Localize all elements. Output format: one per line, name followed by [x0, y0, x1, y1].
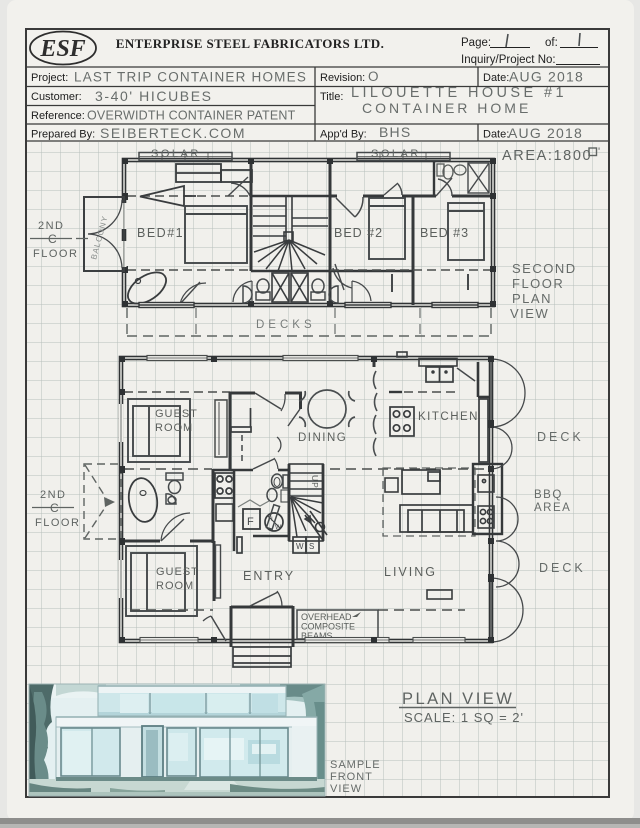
svg-text:3-40' HICUBES: 3-40' HICUBES: [95, 88, 213, 104]
svg-text:DECKS: DECKS: [256, 319, 316, 331]
svg-text:DINING: DINING: [298, 432, 347, 444]
svg-text:OVERWIDTH CONTAINER PATENT: OVERWIDTH CONTAINER PATENT: [87, 109, 296, 123]
svg-text:GUEST: GUEST: [155, 408, 198, 420]
svg-text:CONTAINER HOME: CONTAINER HOME: [362, 100, 531, 116]
svg-text:PLAN VIEW: PLAN VIEW: [402, 690, 514, 708]
svg-text:Inquiry/Project No:: Inquiry/Project No:: [461, 54, 556, 66]
svg-text:FLOOR: FLOOR: [33, 248, 78, 260]
svg-text:BED #3: BED #3: [420, 226, 469, 240]
svg-text:App'd By:: App'd By:: [320, 129, 367, 141]
svg-text:LAST TRIP CONTAINER HOMES: LAST TRIP CONTAINER HOMES: [74, 70, 307, 85]
svg-text:ENTRY: ENTRY: [243, 569, 295, 583]
svg-text:LIVING: LIVING: [384, 565, 437, 579]
svg-text:2ND: 2ND: [40, 489, 67, 501]
svg-text:Customer:: Customer:: [31, 91, 82, 103]
svg-text:of:: of:: [545, 37, 558, 49]
svg-text:Project:: Project:: [31, 72, 68, 84]
svg-text:ENTERPRISE STEEL FABRICATORS L: ENTERPRISE STEEL FABRICATORS LTD.: [116, 36, 384, 51]
svg-text:Reference:: Reference:: [31, 110, 85, 122]
svg-text:': ': [598, 146, 600, 158]
svg-text:UP: UP: [310, 475, 320, 489]
svg-text:LILOUETTE HOUSE #1: LILOUETTE HOUSE #1: [351, 85, 567, 101]
svg-text:2ND: 2ND: [38, 220, 65, 232]
svg-text:S: S: [309, 542, 314, 551]
svg-text:GUEST: GUEST: [156, 566, 199, 578]
svg-text:COMPOSITE: COMPOSITE: [301, 622, 355, 632]
svg-text:KITCHEN: KITCHEN: [418, 411, 479, 423]
svg-text:ESF: ESF: [39, 36, 85, 62]
svg-text:SAMPLE: SAMPLE: [330, 759, 381, 771]
svg-text:AUG 2018: AUG 2018: [508, 125, 583, 141]
svg-text:VIEW: VIEW: [330, 783, 362, 795]
svg-text:BED#1: BED#1: [137, 226, 184, 240]
svg-text:SOLAR: SOLAR: [151, 148, 201, 160]
svg-text:Page:: Page:: [461, 37, 491, 49]
svg-text:AUG 2018: AUG 2018: [509, 69, 584, 85]
svg-text:BED #2: BED #2: [334, 226, 383, 240]
svg-text:FLOOR: FLOOR: [512, 276, 564, 291]
svg-text:OVERHEAD: OVERHEAD: [301, 612, 352, 622]
svg-text:DECK: DECK: [537, 430, 584, 444]
svg-text:Prepared By:: Prepared By:: [31, 129, 95, 141]
svg-text:VIEW: VIEW: [510, 306, 549, 321]
svg-text:SECOND: SECOND: [512, 261, 577, 276]
svg-text:SEIBERTECK.COM: SEIBERTECK.COM: [100, 125, 246, 141]
svg-text:FRONT: FRONT: [330, 771, 373, 783]
svg-text:Date:: Date:: [483, 72, 509, 84]
svg-text:W: W: [275, 524, 282, 531]
svg-text:AREA:1800: AREA:1800: [502, 148, 592, 164]
svg-text:FLOOR: FLOOR: [35, 517, 80, 529]
svg-text:BBQ: BBQ: [534, 489, 563, 501]
svg-text:DECK: DECK: [539, 561, 586, 575]
svg-text:Title:: Title:: [320, 91, 343, 103]
svg-text:ROOM: ROOM: [156, 580, 194, 592]
svg-text:SOLAR: SOLAR: [371, 148, 421, 160]
svg-text:ROOM: ROOM: [155, 422, 193, 434]
svg-text:W: W: [296, 542, 304, 551]
svg-text:AREA: AREA: [534, 502, 571, 514]
svg-text:Revision:: Revision:: [320, 72, 365, 84]
svg-text:PLAN: PLAN: [512, 291, 552, 306]
svg-text:O: O: [368, 69, 380, 84]
svg-text:Date:: Date:: [483, 129, 509, 141]
svg-text:SCALE: 1 SQ = 2': SCALE: 1 SQ = 2': [404, 710, 524, 725]
svg-text:BHS: BHS: [379, 124, 411, 140]
svg-text:F: F: [247, 516, 254, 528]
